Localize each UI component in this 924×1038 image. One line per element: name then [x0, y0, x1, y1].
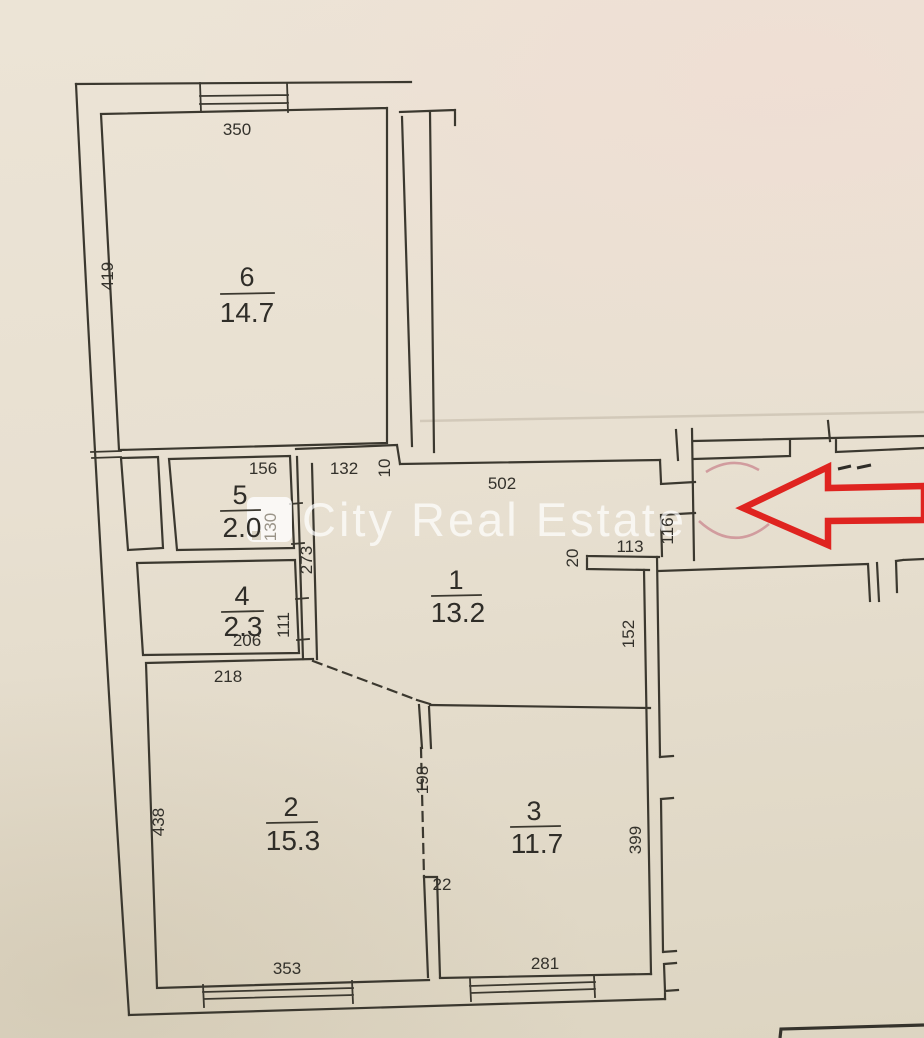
dim-273: 273 [297, 546, 316, 574]
dim-10: 10 [375, 459, 394, 478]
shaft-walls [400, 110, 455, 452]
dim-116: 116 [658, 517, 677, 544]
dim-198: 198 [413, 766, 432, 794]
wall-pier-113 [587, 556, 659, 570]
room3-underline [511, 826, 560, 827]
room1-label: 1 13.2 [431, 565, 486, 628]
room4-walls [137, 560, 299, 655]
room6-area: 14.7 [220, 297, 275, 328]
room6-number: 6 [239, 262, 254, 292]
room1-top-wall [400, 460, 660, 464]
dim-353: 353 [273, 959, 301, 978]
entrance-arrow [743, 467, 924, 545]
dim-399: 399 [626, 826, 645, 854]
dim-132: 132 [330, 459, 358, 478]
dim-113: 113 [616, 537, 643, 556]
dim-438: 438 [149, 808, 168, 836]
room4-label: 4 2.3 [222, 581, 263, 642]
right-outer-wall [660, 756, 678, 999]
room2-underline [267, 822, 317, 823]
dim-22: 22 [433, 875, 452, 894]
window-room3 [470, 976, 595, 1001]
dim-419: 419 [98, 262, 117, 290]
room1-underline [432, 595, 481, 596]
room5-underline [221, 510, 260, 511]
hallway-top-walls [694, 421, 924, 459]
room3-number: 3 [526, 796, 541, 826]
walls [76, 82, 924, 1015]
room2-walls [146, 659, 429, 988]
room5-area: 2.0 [223, 512, 262, 543]
outer-wall-top [76, 82, 411, 84]
paper-fold-line [420, 412, 924, 421]
window-room6 [200, 83, 288, 112]
dim-111: 111 [274, 612, 293, 638]
room3-area: 11.7 [511, 828, 563, 859]
room2-area: 15.3 [266, 825, 321, 856]
outer-wall-left [76, 84, 129, 1015]
right-inner-wall [644, 557, 660, 974]
room6-underline [221, 293, 274, 294]
dim-218: 218 [214, 667, 242, 686]
floor-plan-photo: City Real Estate 350 419 156 132 10 502 … [0, 0, 924, 1038]
floor-plan-canvas: City Real Estate 350 419 156 132 10 502 … [0, 0, 924, 1038]
dim-502: 502 [488, 474, 516, 493]
obscured-text-marks [838, 465, 871, 469]
outer-wall-bottom [129, 999, 665, 1015]
room2-number: 2 [283, 792, 298, 822]
door-arc-bottom [699, 521, 769, 538]
door-arc-top [706, 463, 759, 472]
dim-20: 20 [563, 549, 582, 568]
dim-156: 156 [249, 459, 277, 478]
room2-label: 2 15.3 [266, 792, 321, 856]
dim-130: 130 [261, 513, 280, 541]
bottom-right-unit-corner [780, 1025, 924, 1038]
room1-number: 1 [448, 565, 463, 595]
room4-number: 4 [234, 581, 249, 611]
room3-label: 3 11.7 [511, 796, 563, 859]
room5-label: 5 2.0 [221, 480, 261, 543]
partition-solid-top [417, 700, 431, 748]
dim-152: 152 [619, 620, 638, 648]
room1-area: 13.2 [431, 597, 486, 628]
corridor-bottom-walls [659, 559, 924, 601]
partition-dashed-diagonal [313, 661, 417, 700]
room5-number: 5 [232, 480, 247, 510]
dim-281: 281 [531, 954, 559, 973]
dim-350: 350 [223, 120, 251, 139]
room6-label: 6 14.7 [220, 262, 275, 328]
closet-walls [121, 457, 163, 550]
room4-area: 2.3 [224, 611, 263, 642]
